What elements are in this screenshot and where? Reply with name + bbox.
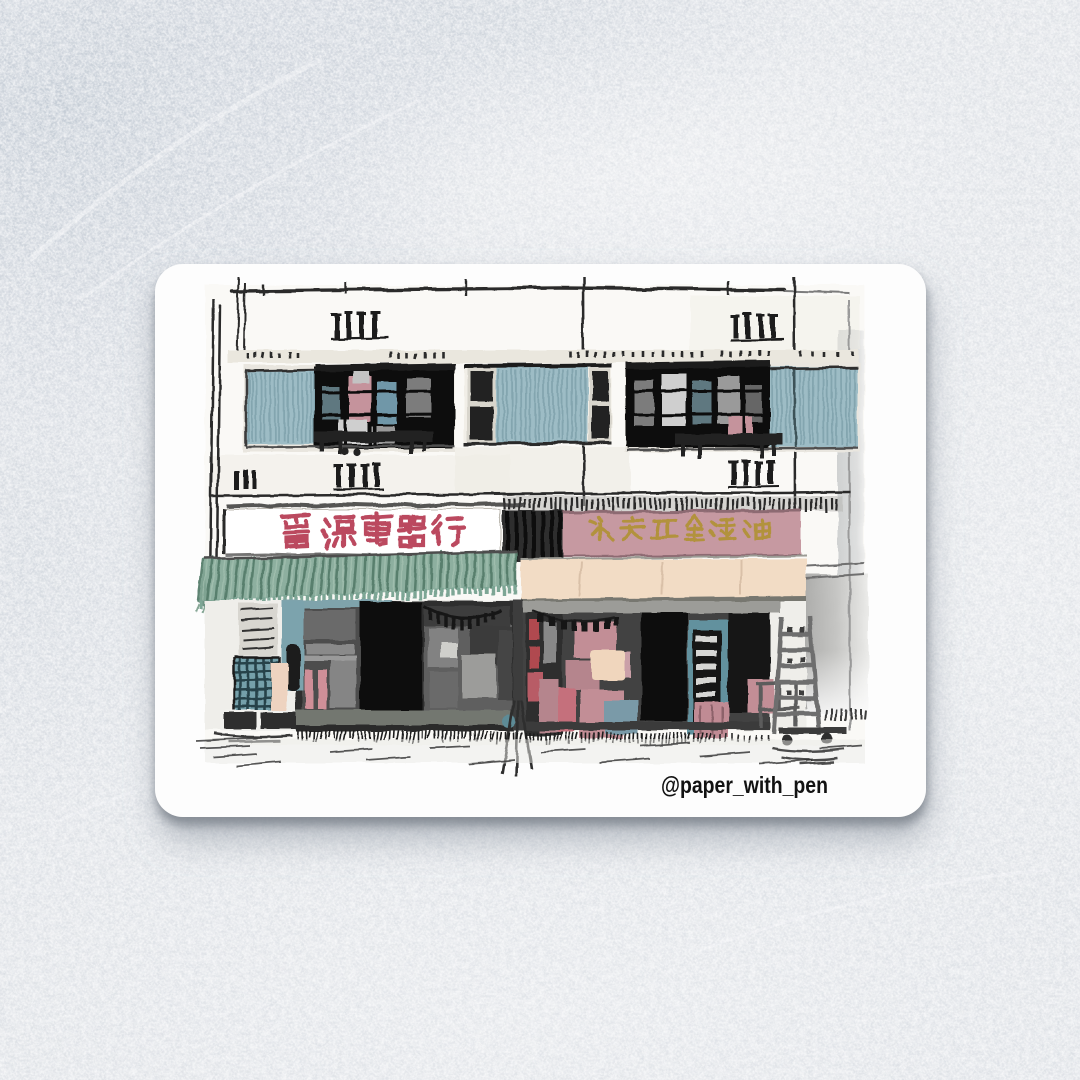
svg-text:@paper_with_pen: @paper_with_pen [661, 772, 828, 798]
